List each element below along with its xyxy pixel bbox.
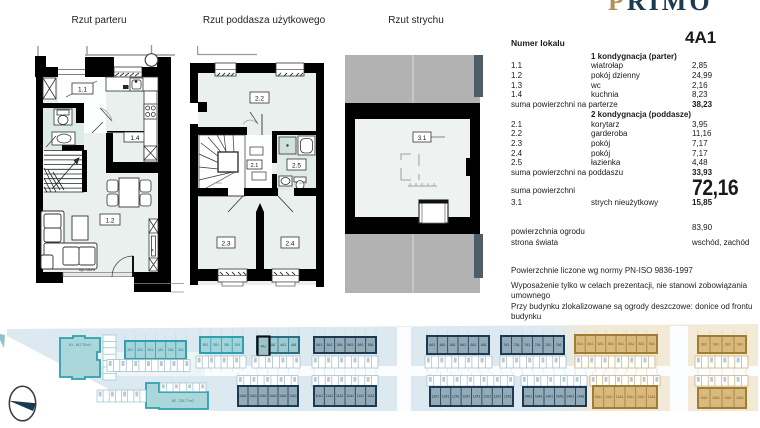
svg-text:3A1: 3A1 <box>137 348 143 352</box>
svg-text:11A1: 11A1 <box>357 394 365 398</box>
svg-text:14A1: 14A1 <box>524 395 532 399</box>
svg-text:12A1: 12A1 <box>504 395 512 399</box>
svg-text:8A1: 8A1 <box>639 342 645 346</box>
svg-text:10A1: 10A1 <box>239 394 247 398</box>
svg-text:15A1: 15A1 <box>605 395 613 399</box>
svg-text:5A1: 5A1 <box>316 343 322 347</box>
svg-text:B2 - 229,77 m2: B2 - 229,77 m2 <box>172 399 194 403</box>
svg-text:8A1: 8A1 <box>649 342 655 346</box>
svg-text:16A1: 16A1 <box>712 396 720 400</box>
svg-text:3A1: 3A1 <box>168 348 174 352</box>
svg-text:16A1: 16A1 <box>724 396 732 400</box>
svg-text:11A1: 11A1 <box>336 394 344 398</box>
svg-text:3B1: 3B1 <box>202 343 208 347</box>
svg-text:12A1: 12A1 <box>452 395 460 399</box>
svg-text:5A1: 5A1 <box>337 343 343 347</box>
svg-text:10A1: 10A1 <box>289 394 297 398</box>
svg-text:11A1: 11A1 <box>367 394 375 398</box>
svg-text:16A1: 16A1 <box>736 396 744 400</box>
svg-text:6A1: 6A1 <box>481 343 487 347</box>
svg-text:10A1: 10A1 <box>269 394 277 398</box>
svg-text:7A1: 7A1 <box>535 343 541 347</box>
svg-text:7A1: 7A1 <box>556 343 562 347</box>
svg-text:5A1: 5A1 <box>347 343 353 347</box>
svg-text:4A1: 4A1 <box>261 345 267 349</box>
svg-text:16A1: 16A1 <box>700 396 708 400</box>
svg-text:8A1: 8A1 <box>587 342 593 346</box>
svg-text:4A1: 4A1 <box>270 343 276 347</box>
svg-text:11A1: 11A1 <box>346 394 354 398</box>
svg-text:3A1: 3A1 <box>178 348 184 352</box>
svg-text:9A1: 9A1 <box>713 343 719 347</box>
svg-text:6A1: 6A1 <box>429 343 435 347</box>
svg-text:3A1: 3A1 <box>127 348 133 352</box>
svg-text:9A1: 9A1 <box>737 343 743 347</box>
svg-text:3A1: 3A1 <box>158 348 164 352</box>
svg-text:14A1: 14A1 <box>545 395 553 399</box>
svg-text:12A1: 12A1 <box>473 395 481 399</box>
svg-text:12A1: 12A1 <box>431 395 439 399</box>
svg-text:8A1: 8A1 <box>577 342 583 346</box>
svg-text:7A1: 7A1 <box>514 343 520 347</box>
svg-text:6A1: 6A1 <box>471 343 477 347</box>
svg-text:11A1: 11A1 <box>326 394 334 398</box>
svg-text:8A1: 8A1 <box>628 342 634 346</box>
svg-text:15A1: 15A1 <box>648 395 656 399</box>
svg-text:6A1: 6A1 <box>460 343 466 347</box>
svg-text:11A1: 11A1 <box>315 394 323 398</box>
svg-text:15A1: 15A1 <box>616 395 624 399</box>
svg-text:9A1: 9A1 <box>701 343 707 347</box>
svg-text:8A1: 8A1 <box>598 342 604 346</box>
svg-text:8A1: 8A1 <box>618 342 624 346</box>
svg-text:10A1: 10A1 <box>279 394 287 398</box>
svg-text:7A1: 7A1 <box>545 343 551 347</box>
svg-text:8A1: 8A1 <box>608 342 614 346</box>
svg-text:14A1: 14A1 <box>556 395 564 399</box>
svg-text:12A1: 12A1 <box>442 395 450 399</box>
svg-text:12A1: 12A1 <box>494 395 502 399</box>
svg-text:4A1: 4A1 <box>280 343 286 347</box>
svg-text:3B1: 3B1 <box>213 343 219 347</box>
svg-text:5A1: 5A1 <box>327 343 333 347</box>
svg-text:B1 - 647,75 m2: B1 - 647,75 m2 <box>69 343 91 347</box>
svg-text:9A1: 9A1 <box>725 343 731 347</box>
svg-text:4A1: 4A1 <box>291 343 297 347</box>
svg-text:15A1: 15A1 <box>626 395 634 399</box>
svg-text:14A1: 14A1 <box>566 395 574 399</box>
svg-text:3B1: 3B1 <box>235 343 241 347</box>
svg-text:15A1: 15A1 <box>594 395 602 399</box>
svg-text:14A1: 14A1 <box>577 395 585 399</box>
svg-text:5A1: 5A1 <box>368 343 374 347</box>
svg-text:12A1: 12A1 <box>462 395 470 399</box>
svg-text:10A1: 10A1 <box>249 394 257 398</box>
svg-text:6A1: 6A1 <box>450 343 456 347</box>
svg-text:15A1: 15A1 <box>637 395 645 399</box>
svg-text:6A1: 6A1 <box>440 343 446 347</box>
svg-text:14A1: 14A1 <box>535 395 543 399</box>
svg-text:3A1: 3A1 <box>147 348 153 352</box>
svg-text:3B1: 3B1 <box>224 343 230 347</box>
svg-text:12A1: 12A1 <box>483 395 491 399</box>
svg-text:5A1: 5A1 <box>358 343 364 347</box>
svg-text:7A1: 7A1 <box>503 343 509 347</box>
svg-text:10A1: 10A1 <box>259 394 267 398</box>
svg-text:7A1: 7A1 <box>524 343 530 347</box>
